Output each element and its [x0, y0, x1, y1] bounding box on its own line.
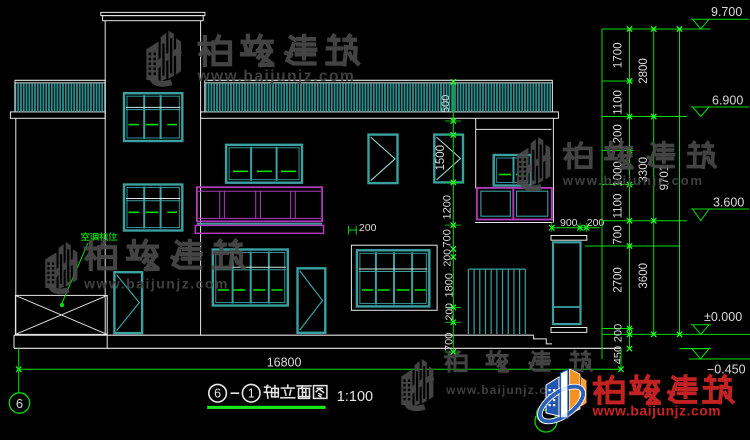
svg-text:6.900: 6.900	[712, 94, 743, 108]
svg-text:www.baijunjz.com: www.baijunjz.com	[83, 276, 229, 292]
svg-text:500: 500	[440, 95, 452, 113]
svg-text:www.baijunjz.com: www.baijunjz.com	[592, 404, 722, 419]
svg-text:1200: 1200	[442, 195, 454, 219]
svg-text:±0.000: ±0.000	[704, 310, 742, 324]
svg-text:16800: 16800	[267, 355, 302, 369]
svg-text:200: 200	[442, 249, 454, 267]
svg-text:1500: 1500	[435, 145, 447, 171]
svg-text:1:100: 1:100	[337, 389, 373, 405]
svg-text:700: 700	[442, 229, 454, 247]
svg-text:1800: 1800	[444, 273, 456, 297]
svg-text:3.600: 3.600	[713, 196, 744, 210]
svg-text:−0.450: −0.450	[707, 363, 746, 377]
svg-text:700: 700	[444, 333, 456, 351]
svg-text:200: 200	[613, 324, 625, 342]
svg-text:200: 200	[444, 303, 456, 321]
svg-text:www.baijunjz.com: www.baijunjz.com	[197, 68, 356, 85]
svg-text:6: 6	[16, 396, 23, 411]
svg-text:www.baijunjz.com: www.baijunjz.com	[562, 173, 704, 188]
svg-text:1700: 1700	[613, 43, 625, 69]
svg-text:1: 1	[248, 387, 255, 401]
svg-text:1100: 1100	[613, 194, 625, 219]
svg-text:200: 200	[359, 222, 377, 234]
svg-text:450: 450	[613, 346, 625, 364]
svg-text:2800: 2800	[638, 58, 650, 84]
svg-text:2700: 2700	[613, 267, 625, 293]
svg-text:9.700: 9.700	[711, 5, 742, 19]
svg-text:1100: 1100	[613, 90, 625, 115]
svg-text:6: 6	[214, 387, 221, 401]
svg-text:3600: 3600	[638, 263, 650, 289]
svg-text:700: 700	[613, 225, 625, 244]
svg-text:900: 900	[560, 217, 578, 229]
